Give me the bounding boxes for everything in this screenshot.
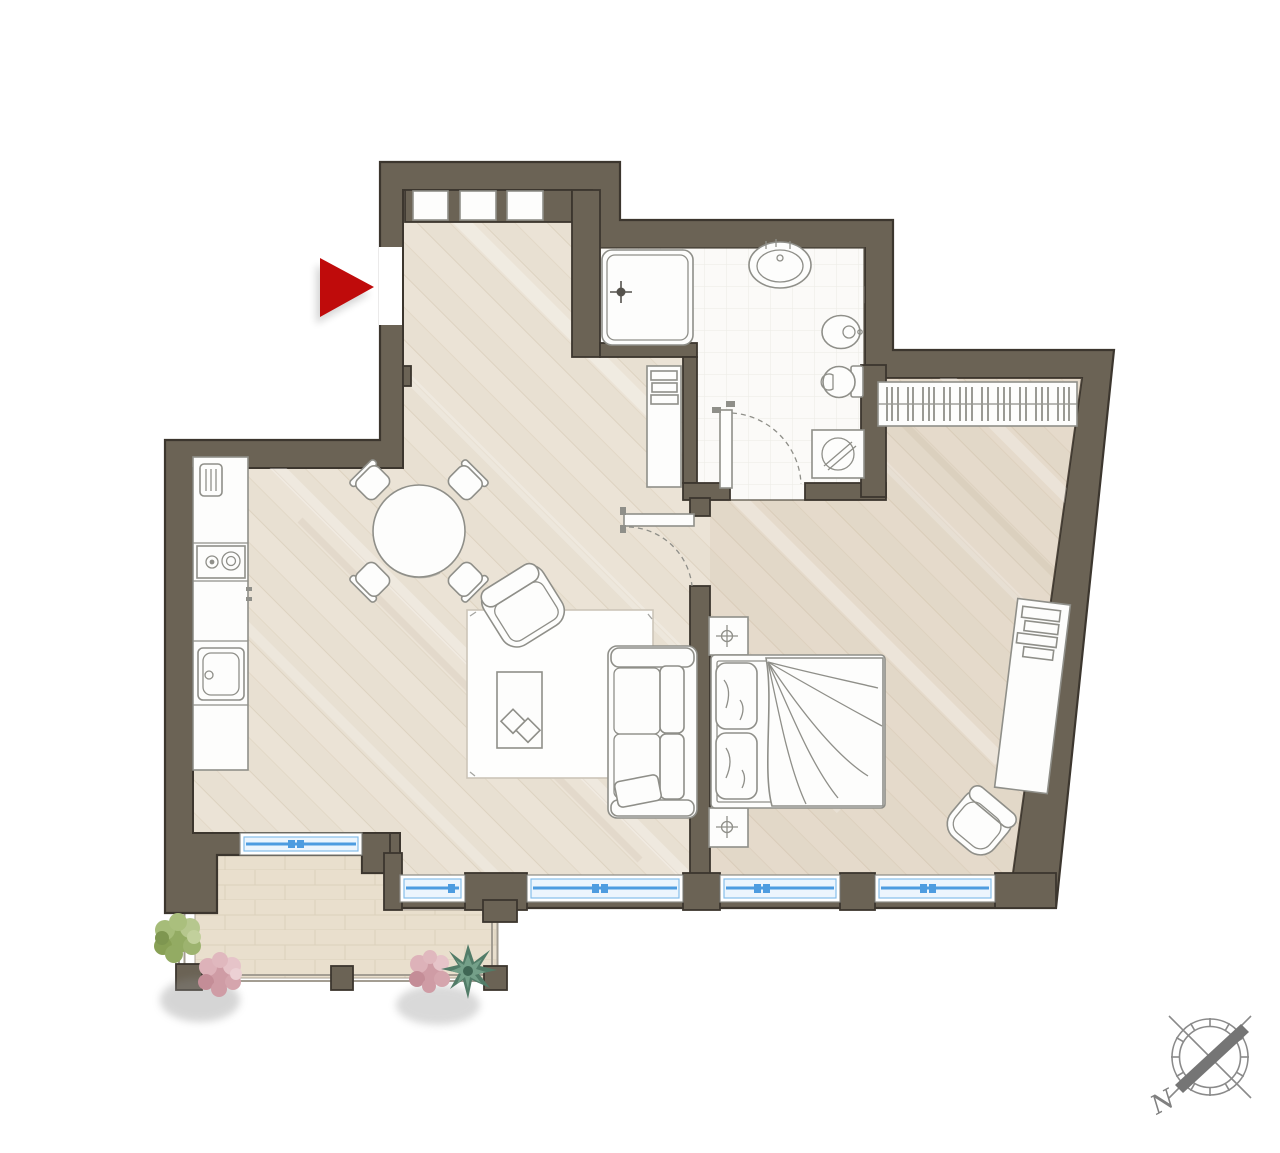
kitchen-counter — [193, 457, 248, 770]
sofa — [608, 646, 697, 818]
entrance-closet-modules — [413, 191, 543, 220]
cooktop-icon — [197, 546, 245, 578]
kitchen-sink-icon — [198, 648, 244, 700]
shower — [602, 250, 693, 345]
pink-flower-plant-icon — [409, 950, 450, 993]
kitchen — [193, 457, 252, 770]
window-3 — [720, 875, 840, 902]
small-appliance-icon — [200, 464, 222, 496]
window-1 — [400, 875, 465, 902]
green-bush-plant-icon — [154, 913, 201, 963]
floor-plan-drawing: N — [0, 0, 1280, 1153]
floor-plan-canvas: N — [0, 0, 1280, 1153]
wardrobe-with-hangers — [878, 382, 1077, 426]
washing-machine-icon — [812, 430, 864, 478]
pillow — [716, 733, 757, 799]
entrance-arrow-icon — [320, 258, 374, 317]
nightstand-with-lamp — [709, 808, 748, 847]
window-4 — [875, 875, 995, 902]
compass-rose-icon: N — [1145, 1016, 1251, 1121]
toilet-icon — [821, 366, 863, 398]
entrance-opening — [379, 247, 402, 325]
coffee-table — [497, 672, 542, 748]
compass-north-label: N — [1145, 1083, 1181, 1121]
window-2 — [527, 875, 683, 902]
nightstand-with-lamp — [709, 617, 748, 655]
balcony-window — [240, 833, 362, 855]
double-bed — [711, 655, 885, 808]
pillow — [716, 663, 757, 729]
railing-post — [331, 966, 353, 990]
shelf-cabinet — [647, 366, 681, 487]
